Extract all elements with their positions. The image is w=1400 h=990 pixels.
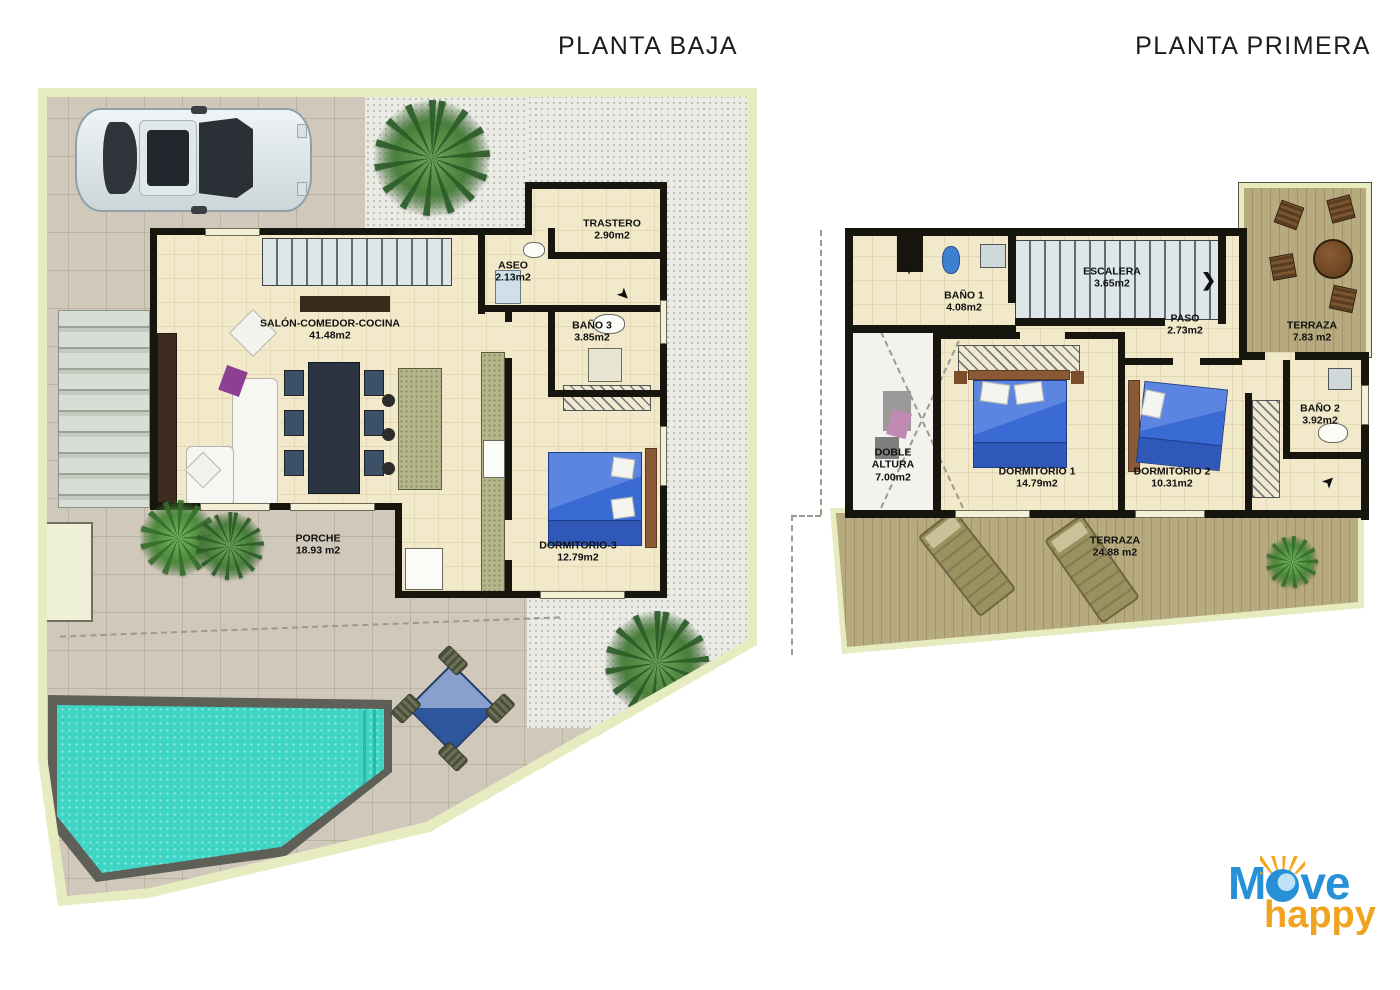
room-label-bano1: BAÑO 1 4.08m2 — [944, 290, 984, 315]
wall — [1200, 358, 1242, 365]
wall — [1118, 332, 1125, 510]
car-mirror-right — [191, 206, 207, 214]
movehappy-logo: Mve happy — [1228, 860, 1398, 934]
room-label-salon: SALÓN-COMEDOR-COCINA 41.48m2 — [260, 318, 400, 343]
pillow — [611, 497, 636, 520]
room-name: BAÑO 2 — [1300, 403, 1340, 415]
bed-headboard — [645, 448, 657, 548]
room-name: DORMITORIO 1 — [999, 466, 1076, 478]
plot-ground: ➤ — [30, 80, 767, 912]
patio-chair — [484, 693, 516, 725]
room-label-porche: PORCHE 18.93 m2 — [296, 533, 341, 558]
wall — [548, 305, 555, 397]
dining-chair — [364, 410, 384, 436]
tv-unit — [157, 333, 177, 503]
wall — [1239, 510, 1369, 518]
wall — [1125, 358, 1173, 365]
wall — [395, 591, 667, 598]
room-label-terraza-baja: TERRAZA 24.88 m2 — [1090, 535, 1140, 560]
room-name: TRASTERO — [583, 218, 641, 230]
pillow — [1014, 381, 1045, 405]
room-name: ASEO — [495, 260, 531, 272]
wall — [1008, 228, 1016, 303]
closet — [563, 385, 651, 411]
toilet — [942, 246, 960, 274]
window — [660, 426, 667, 486]
window — [1361, 385, 1369, 425]
window — [955, 510, 1030, 518]
room-area: 24.88 m2 — [1090, 547, 1140, 559]
window — [1135, 510, 1205, 518]
car-headlight-bottom — [297, 182, 307, 196]
stair-direction-icon: ❯ — [1201, 270, 1216, 291]
room-label-terraza-alta: TERRAZA 7.83 m2 — [1287, 320, 1337, 345]
car-mirror-left — [191, 106, 207, 114]
window — [205, 228, 260, 236]
room-name: PASO — [1167, 313, 1203, 325]
window — [540, 591, 625, 599]
room-area: 7.83 m2 — [1287, 332, 1337, 344]
room-name: DORMITORIO-3 — [539, 540, 616, 552]
room-name: ESCALERA — [1083, 266, 1141, 278]
wall — [548, 390, 667, 397]
room-name: TERRAZA — [1090, 535, 1140, 547]
room-area: 14.79m2 — [999, 478, 1076, 490]
room-label-paso: PASO 2.73m2 — [1167, 313, 1203, 338]
patio-chair — [437, 741, 469, 773]
logo-sun-icon — [1266, 869, 1299, 902]
room-name: SALÓN-COMEDOR-COCINA — [260, 318, 400, 330]
dining-chair — [284, 450, 304, 476]
window — [290, 503, 375, 511]
room-area: 2.13m2 — [495, 272, 531, 284]
room-label-escalera: ESCALERA 3.65m2 — [1083, 266, 1141, 291]
car-windshield — [199, 118, 253, 198]
title-planta-primera: PLANTA PRIMERA — [1135, 32, 1371, 61]
wall — [1283, 360, 1290, 452]
wall — [1245, 393, 1252, 518]
palm-tree — [605, 611, 709, 715]
wall — [395, 508, 402, 598]
room-name: BAÑO 1 — [944, 290, 984, 302]
terrace-plant — [1266, 536, 1318, 588]
title-planta-baja: PLANTA BAJA — [558, 32, 738, 61]
closet — [958, 345, 1080, 373]
room-area: 3.92m2 — [1300, 415, 1340, 427]
room-label-bano2: BAÑO 2 3.92m2 — [1300, 403, 1340, 428]
shower-tray — [588, 348, 622, 382]
room-name: DORMITORIO 2 — [1134, 466, 1211, 478]
wall — [1283, 452, 1369, 459]
fridge — [405, 548, 443, 590]
entry-gate — [38, 522, 93, 622]
room-area: 3.65m2 — [1083, 278, 1141, 290]
wall — [548, 228, 555, 259]
room-label-trastero: TRASTERO 2.90m2 — [583, 218, 641, 243]
dashed-line — [791, 515, 793, 655]
palm-tree — [196, 512, 264, 580]
room-area: 2.90m2 — [583, 230, 641, 242]
ground-floor-plan: ➤ SALÓN-COMEDOR-COCINA 41.48m2 TRASTERO … — [30, 80, 767, 912]
dining-chair — [284, 410, 304, 436]
terrace-chair — [1329, 285, 1357, 313]
lower-terrace — [828, 508, 1368, 658]
bed-headboard — [968, 370, 1070, 380]
dining-table — [308, 362, 360, 494]
car-headlight-top — [297, 124, 307, 138]
wall — [1065, 332, 1120, 339]
door-gap — [505, 322, 512, 358]
room-area: 2.73m2 — [1167, 325, 1203, 337]
room-label-dormitorio2: DORMITORIO 2 10.31m2 — [1134, 466, 1211, 491]
wall — [933, 325, 941, 518]
room-area: 12.79m2 — [539, 552, 616, 564]
room-label-dormitorio1: DORMITORIO 1 14.79m2 — [999, 466, 1076, 491]
bar-stool — [382, 394, 395, 407]
sink — [980, 244, 1006, 268]
closet — [1252, 400, 1280, 498]
kitchen-island — [398, 368, 442, 490]
toilet — [523, 242, 545, 258]
pergola-dashed-line — [60, 616, 560, 637]
room-label-aseo: ASEO 2.13m2 — [495, 260, 531, 285]
wall — [1015, 318, 1165, 326]
room-label-doble-altura: DOBLE ALTURA 7.00m2 — [865, 446, 921, 483]
room-area: 18.93 m2 — [296, 545, 341, 557]
wall — [478, 228, 485, 314]
wall — [940, 332, 1020, 339]
wall — [555, 252, 667, 259]
interior-stairs — [262, 238, 452, 286]
dashed-line — [820, 230, 822, 515]
wall — [1218, 236, 1226, 324]
wall — [1295, 352, 1369, 360]
room-label-dormitorio3: DORMITORIO-3 12.79m2 — [539, 540, 616, 565]
dining-chair — [284, 370, 304, 396]
room-name: PORCHE — [296, 533, 341, 545]
nightstand — [954, 371, 967, 384]
room-area: 3.85m2 — [572, 332, 612, 344]
bar-stool — [382, 428, 395, 441]
dining-chair — [364, 450, 384, 476]
window — [660, 300, 667, 344]
car-rear-window — [103, 122, 137, 194]
wall — [150, 228, 157, 510]
room-name: BAÑO 3 — [572, 320, 612, 332]
wall — [1239, 352, 1265, 360]
wall — [525, 182, 667, 189]
room-label-bano3: BAÑO 3 3.85m2 — [572, 320, 612, 345]
bar-stool — [382, 462, 395, 475]
sink — [1328, 368, 1352, 390]
pool-lane-line — [363, 710, 366, 848]
wall — [525, 182, 532, 235]
pillow — [980, 381, 1011, 405]
wall — [845, 228, 853, 518]
room-name: TERRAZA — [1287, 320, 1337, 332]
floorplan-sheet: PLANTA BAJA PLANTA PRIMERA — [0, 0, 1400, 990]
patio-table-set — [396, 652, 508, 764]
sun-wave-icon — [1266, 869, 1299, 902]
wall — [1361, 352, 1369, 520]
first-floor-plan: ❯ ➤ ➤ BAÑO 1 4.08m2 ESCALERA 3.65m2 — [805, 175, 1385, 675]
swimming-pool — [45, 692, 395, 904]
dining-chair — [364, 370, 384, 396]
room-area: 7.00m2 — [865, 471, 921, 483]
sideboard — [300, 296, 390, 312]
palm-tree — [374, 100, 490, 216]
kitchen-sink — [483, 440, 505, 478]
sofa-chaise — [232, 378, 278, 506]
car — [75, 108, 312, 212]
dashed-line — [791, 515, 821, 517]
room-area: 4.08m2 — [944, 302, 984, 314]
terrace-chair — [1269, 253, 1297, 281]
terrace-table — [1313, 239, 1353, 279]
car-sunroof — [147, 130, 189, 186]
patio-table — [407, 663, 498, 754]
pillow — [611, 457, 636, 480]
room-name: DOBLE ALTURA — [865, 446, 921, 471]
room-area: 41.48m2 — [260, 330, 400, 342]
door-gap — [505, 520, 512, 560]
wall — [1239, 228, 1247, 360]
plot-boundary: ➤ — [30, 80, 767, 912]
window — [200, 503, 270, 511]
room-area: 10.31m2 — [1134, 478, 1211, 490]
nightstand — [1071, 371, 1084, 384]
exterior-steps — [58, 310, 150, 508]
